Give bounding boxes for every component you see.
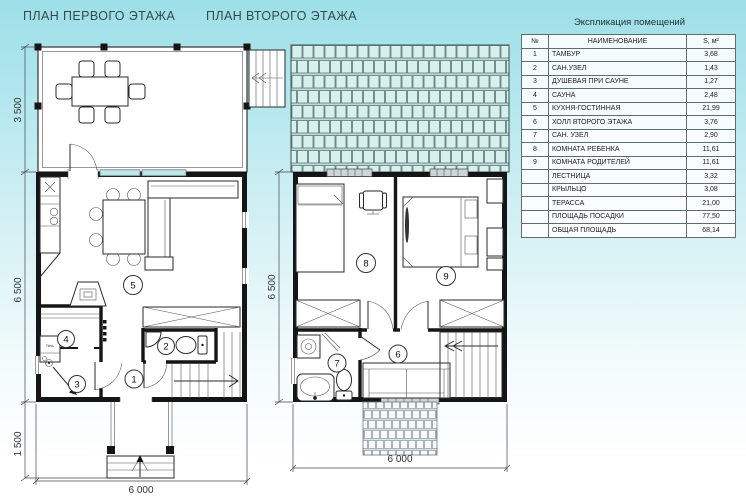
hall-sofa <box>363 363 450 398</box>
row-num <box>522 197 549 211</box>
table-row: 6ХОЛЛ ВТОРОГО ЭТАЖА3,76 <box>522 116 736 130</box>
row-num <box>522 183 549 197</box>
room-number: 7 <box>334 359 339 370</box>
room-legend: Экспликация помещений № НАИМЕНОВАНИЕ S, … <box>521 17 738 238</box>
window-glazing <box>142 170 186 176</box>
table-row: ОБЩАЯ ПЛОЩАДЬ68,14 <box>522 224 736 238</box>
row-name: КОМНАТА РЕБЕНКА <box>549 143 687 157</box>
row-num: 1 <box>522 48 549 62</box>
row-num <box>522 170 549 184</box>
row-area: 68,14 <box>687 224 736 238</box>
col-header-area: S, м² <box>687 35 736 49</box>
table-row: 4САУНА2,48 <box>522 89 736 103</box>
porch-roof-shingles <box>363 402 437 455</box>
row-num: 2 <box>522 62 549 76</box>
table-row: ПЛОЩАДЬ ПОСАДКИ77,50 <box>522 210 736 224</box>
table-header-row: № НАИМЕНОВАНИЕ S, м² <box>522 35 736 49</box>
table-row: 3ДУШЕВАЯ ПРИ САУНЕ1,27 <box>522 75 736 89</box>
col-header-name: НАИМЕНОВАНИЕ <box>549 35 687 49</box>
table-row: КРЫЛЬЦО3,08 <box>522 183 736 197</box>
row-num: 9 <box>522 156 549 170</box>
room-number: 8 <box>363 259 368 270</box>
room-number: 9 <box>443 272 448 283</box>
legend-table: № НАИМЕНОВАНИЕ S, м² 1ТАМБУР3,68 2САН.УЗ… <box>521 34 736 238</box>
table-row: 5КУХНЯ-ГОСТИННАЯ21,99 <box>522 102 736 116</box>
toilet <box>337 370 352 391</box>
table-row: 7САН. УЗЕЛ2,90 <box>522 129 736 143</box>
row-name: КОМНАТА РОДИТЕЛЕЙ <box>549 156 687 170</box>
table-row: 8КОМНАТА РЕБЕНКА11,61 <box>522 143 736 157</box>
wall-mirror <box>405 207 409 243</box>
wardrobe-parents <box>440 300 504 327</box>
row-area: 21,99 <box>687 102 736 116</box>
row-area: 3,76 <box>687 116 736 130</box>
legend-title: Экспликация помещений <box>521 17 738 28</box>
table-row: 2САН.УЗЕЛ1,43 <box>522 62 736 76</box>
row-name: ПЛОЩАДЬ ПОСАДКИ <box>549 210 687 224</box>
row-area: 2,48 <box>687 89 736 103</box>
row-num: 7 <box>522 129 549 143</box>
row-num: 5 <box>522 102 549 116</box>
second-floor-title: ПЛАН ВТОРОГО ЭТАЖА <box>206 9 348 23</box>
dim-label-main: 6 500 <box>13 277 24 302</box>
row-name: САН.УЗЕЛ <box>549 62 687 76</box>
room-number: 1 <box>131 375 136 386</box>
dim-label-main: 6 500 <box>267 274 278 299</box>
row-area: 2,90 <box>687 129 736 143</box>
row-name: САУНА <box>549 89 687 103</box>
dim-label-width: 6 000 <box>387 454 412 465</box>
row-num: 3 <box>522 75 549 89</box>
row-name: САН. УЗЕЛ <box>549 129 687 143</box>
row-area: 21,00 <box>687 197 736 211</box>
stove-label: Печь <box>46 344 54 348</box>
room-number: 6 <box>395 350 400 361</box>
kids-bed <box>296 184 344 272</box>
roof-shingles <box>291 45 509 172</box>
row-name: ДУШЕВАЯ ПРИ САУНЕ <box>549 75 687 89</box>
row-num <box>522 224 549 238</box>
row-area: 11,61 <box>687 143 736 157</box>
row-num: 8 <box>522 143 549 157</box>
porch <box>107 402 174 478</box>
table-row: 9КОМНАТА РОДИТЕЛЕЙ11,61 <box>522 156 736 170</box>
washer <box>297 335 320 358</box>
parents-bed <box>403 197 478 267</box>
table-row: 1ТАМБУР3,68 <box>522 48 736 62</box>
dim-label-width: 6 000 <box>128 485 153 496</box>
row-area: 1,27 <box>687 75 736 89</box>
terrace <box>35 44 251 173</box>
row-name: ОБЩАЯ ПЛОЩАДЬ <box>549 224 687 238</box>
row-name: ХОЛЛ ВТОРОГО ЭТАЖА <box>549 116 687 130</box>
window-glazing <box>100 170 140 176</box>
row-area: 3,68 <box>687 48 736 62</box>
room-number: 4 <box>63 335 68 346</box>
row-name: КРЫЛЬЦО <box>549 183 687 197</box>
blueprint-sheet: Печь <box>0 0 746 502</box>
room-number: 2 <box>163 342 168 353</box>
row-name: ТАМБУР <box>549 48 687 62</box>
first-floor-title: ПЛАН ПЕРВОГО ЭТАЖА <box>23 9 165 23</box>
wardrobe-kids <box>296 300 360 327</box>
row-area: 77,50 <box>687 210 736 224</box>
row-area: 3,08 <box>687 183 736 197</box>
porch-steps <box>107 455 174 478</box>
row-num: 4 <box>522 89 549 103</box>
col-header-num: № <box>522 35 549 49</box>
row-name: КУХНЯ-ГОСТИННАЯ <box>549 102 687 116</box>
table-row: ЛЕСТНИЦА3,32 <box>522 170 736 184</box>
room-number: 5 <box>130 281 135 292</box>
dim-label-porch: 1 500 <box>13 431 24 456</box>
row-area: 1,43 <box>687 62 736 76</box>
row-num: 6 <box>522 116 549 130</box>
row-area: 11,61 <box>687 156 736 170</box>
room-number: 3 <box>74 380 79 391</box>
toilet <box>176 337 196 354</box>
table-row: ТЕРАССА21,00 <box>522 197 736 211</box>
first-floor-plan: Печь <box>13 44 285 497</box>
wardrobe-floor1 <box>143 307 240 327</box>
second-floor-plan: 6 500 6 000 8 9 7 6 <box>267 45 510 472</box>
dim-label-terrace: 3 500 <box>13 97 24 122</box>
exterior-stair <box>249 50 285 107</box>
row-num <box>522 210 549 224</box>
row-name: ЛЕСТНИЦА <box>549 170 687 184</box>
row-area: 3,32 <box>687 170 736 184</box>
row-name: ТЕРАССА <box>549 197 687 211</box>
